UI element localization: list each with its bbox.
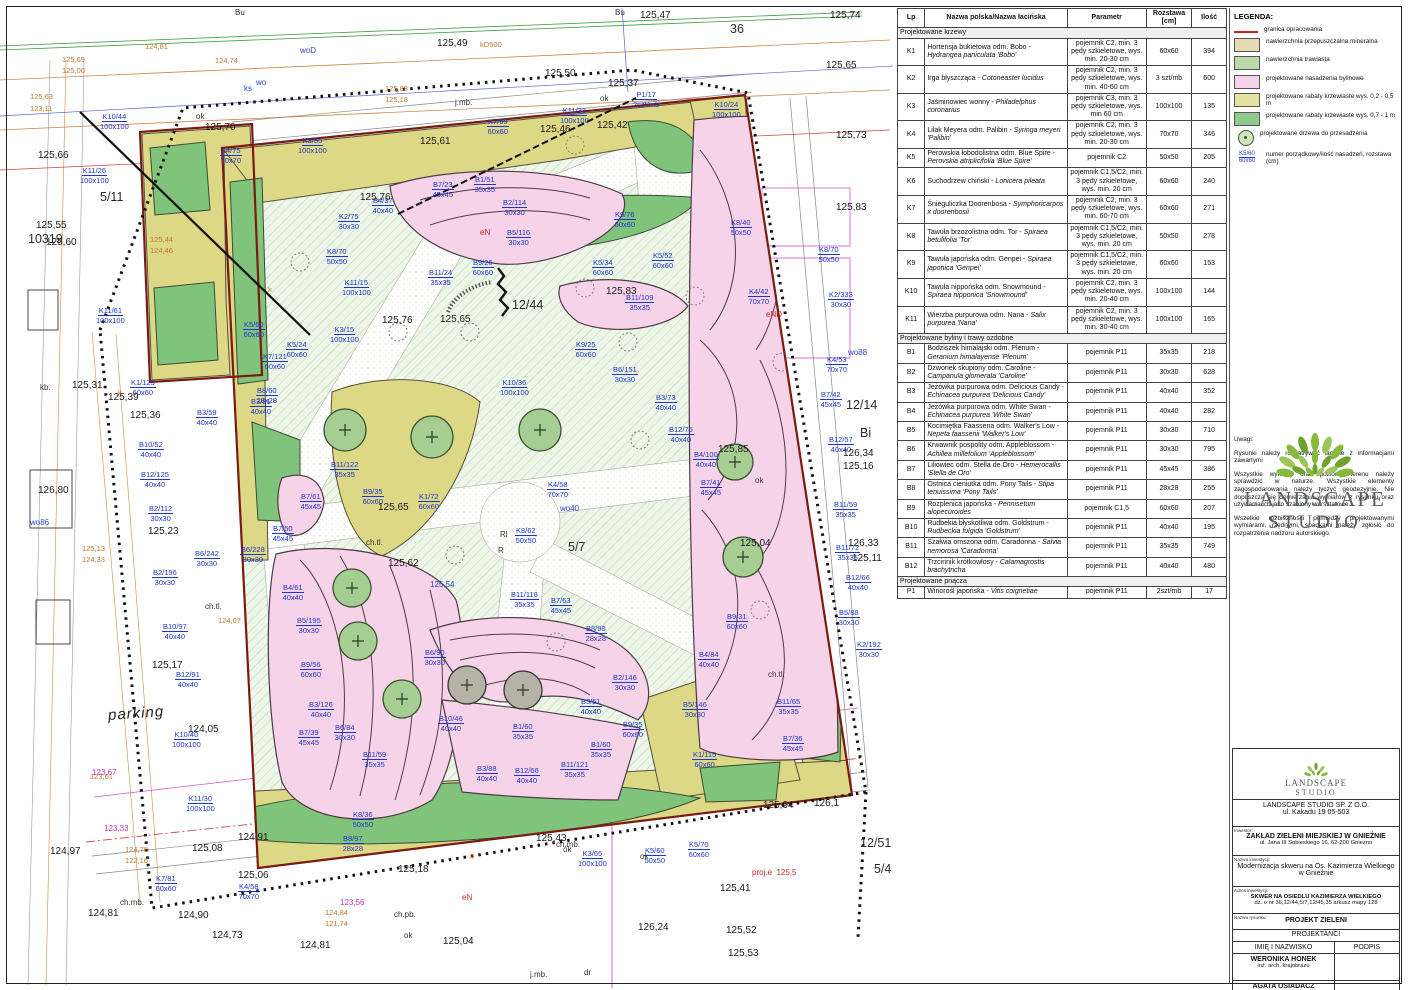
plan-plant-label: B11/12135x35 xyxy=(560,760,589,779)
param-cell: pojemnik P11 xyxy=(1067,587,1146,598)
schedule-row: B9Rozplenica japońska - Pennisetum alope… xyxy=(898,499,1227,518)
plan-text: 36 xyxy=(730,22,744,36)
plan-text: 125,85 xyxy=(718,444,749,455)
plan-text: 124,84 xyxy=(325,908,348,917)
plan-plant-label: B7/3645x45 xyxy=(782,734,804,753)
plan-text: 121,74 xyxy=(325,919,348,928)
plan-plant-label: B8/9728x28 xyxy=(342,834,364,853)
plan-text: 12/14 xyxy=(846,398,877,412)
legend-item: K5/6060x60numer porządkowy/ilość nasadze… xyxy=(1234,151,1396,165)
plan-plant-label: B4/8440x40 xyxy=(698,650,720,669)
col-spacing: Rozstawa [cm] xyxy=(1146,9,1192,28)
plan-text: ok xyxy=(196,112,204,121)
plan-plant-label: K3/15100x100 xyxy=(330,325,359,344)
spacing-cell: 60x60 xyxy=(1146,499,1192,518)
schedule-row: K7Śnieguliczka Doorenbosa - Symphoricarp… xyxy=(898,196,1227,224)
plan-plant-label: B3/7340x40 xyxy=(655,393,677,412)
name-cell: Lilak Meyera odm. Palibin - Syringa meye… xyxy=(925,121,1067,149)
lp-cell: B9 xyxy=(898,499,925,518)
investor-row: Inwestor: ZAKŁAD ZIELENI MIEJSKIEJ W GNI… xyxy=(1233,827,1399,856)
legend-item: nawierzchnia przepuszczalna mineralna xyxy=(1234,38,1396,52)
lp-cell: K1 xyxy=(898,38,925,66)
spacing-cell: 35x35 xyxy=(1146,538,1192,557)
designers-header: PROJEKTANCI xyxy=(1233,930,1399,942)
plan-text: 124,81 xyxy=(300,940,331,951)
plan-plant-label: K5/7060x60 xyxy=(688,840,710,859)
lp-cell: K4 xyxy=(898,121,925,149)
plan-plant-label: K11/26100x100 xyxy=(80,166,109,185)
plan-text: wo xyxy=(256,78,266,87)
qty-cell: 282 xyxy=(1192,402,1227,421)
spacing-cell: 60x60 xyxy=(1146,168,1192,196)
col-qty: Ilość xyxy=(1192,9,1227,28)
plan-text: 126,1 xyxy=(814,798,839,809)
right-panel: LEGENDA: granica opracowanianawierzchnia… xyxy=(1229,8,1400,984)
legend-item-label: projektowane rabaty krzewiaste wys. 0,7 … xyxy=(1266,112,1395,119)
plan-text: 125,47 xyxy=(640,10,671,21)
legend-item-label: nawierzchnia trawiasta xyxy=(1266,56,1330,63)
plan-text: R xyxy=(498,546,504,555)
plan-plant-label: K4/5870x70 xyxy=(547,480,569,499)
plan-text: 124,05 xyxy=(188,724,219,735)
plan-plant-label: B6/15130x30 xyxy=(612,365,638,384)
spacing-cell: 100x100 xyxy=(1146,278,1192,306)
plan-plant-label: B2/11230x30 xyxy=(148,504,173,523)
col-name: Nazwa polska/Nazwa łacińska xyxy=(925,9,1067,28)
plan-text: 124,91 xyxy=(238,832,269,843)
plan-plant-label: K4/5870x70 xyxy=(238,882,260,901)
param-cell: pojemnik P11 xyxy=(1067,557,1146,576)
plan-text: ch.pb. xyxy=(394,910,416,919)
name-cell: Dzwonek skupiony odm. Caroline - Campanu… xyxy=(925,363,1067,382)
plan-plant-label: B11/11835x35 xyxy=(510,590,539,609)
name-cell: Kocimiętka Faassena odm. Walker's Low - … xyxy=(925,421,1067,440)
param-cell: pojemnik C1,5 xyxy=(1067,499,1146,518)
spacing-cell: 100x100 xyxy=(1146,306,1192,334)
spacing-cell: 30x30 xyxy=(1146,441,1192,460)
param-cell: pojemnik C2, min. 3 pędy szkieletowe, wy… xyxy=(1067,278,1146,306)
spacing-cell: 50x50 xyxy=(1146,149,1192,168)
qty-cell: 480 xyxy=(1192,557,1227,576)
plan-text: 125,41 xyxy=(720,883,751,894)
plan-plant-label: B7/5045x45 xyxy=(272,524,294,543)
qty-cell: 749 xyxy=(1192,538,1227,557)
name-cell: Wierzba purpurowa odm. Nana - Salix purp… xyxy=(925,306,1067,334)
name-cell: Trzcinnik krótkowłosy - Calamagrostis br… xyxy=(925,557,1067,576)
name-cell: Winorośl japońska - Vitis coignetiae xyxy=(925,587,1067,598)
company-row: LANDSCAPE STUDIO SP. Z O.O. ul. Kakadu 1… xyxy=(1233,800,1399,827)
schedule-row: K4Lilak Meyera odm. Palibin - Syringa me… xyxy=(898,121,1227,149)
schedule-row: B1Bodziszek himalajski odm. Plenum - Ger… xyxy=(898,344,1227,363)
schedule-row: K5Perowskia łobodolistna odm. Blue Spire… xyxy=(898,149,1227,168)
plan-text: 10319 xyxy=(28,232,63,246)
plan-text: proj.e 125,5 xyxy=(752,868,796,877)
plan-plant-label: B3/5940x40 xyxy=(196,408,218,427)
qty-cell: 135 xyxy=(1192,93,1227,121)
spacing-cell: 60x60 xyxy=(1146,251,1192,279)
param-cell: pojemnik P11 xyxy=(1067,538,1146,557)
plan-text: 125,11 xyxy=(852,553,882,564)
plan-text: 126,34 xyxy=(843,448,874,459)
legend: LEGENDA: granica opracowanianawierzchnia… xyxy=(1234,12,1396,169)
lp-cell: B7 xyxy=(898,460,925,479)
plan-plant-label: B12/6640x40 xyxy=(845,573,871,592)
legend-item-label: projektowane drzewa do przesadzenia xyxy=(1260,130,1367,137)
plan-text: 125,37 xyxy=(608,78,639,89)
spacing-cell: 3 szt/mb xyxy=(1146,66,1192,94)
plan-text: ch.mb. xyxy=(120,898,144,907)
spacing-cell: 40x40 xyxy=(1146,383,1192,402)
designers-colheads: IMIĘ I NAZWISKO PODPIS xyxy=(1233,942,1399,954)
name-cell: Jaśminowiec wonny - Philadelphus coronar… xyxy=(925,93,1067,121)
plan-text: 125,65 xyxy=(826,60,857,71)
color-swatch xyxy=(1234,38,1260,52)
schedule-row: B6Krwawnik pospolity odm. Appleblossom -… xyxy=(898,441,1227,460)
param-cell: pojemnik C2, min. 3 pędy szkieletowe, wy… xyxy=(1067,121,1146,149)
plan-plant-label: B3/5140x40 xyxy=(580,697,602,716)
schedule-row: K10Tawuła nippońska odm. Snowmound - Spi… xyxy=(898,278,1227,306)
designer-name-cell: AGATA OSIADACZmgr inż. arch. krajobrazu xyxy=(1233,981,1335,990)
spacing-cell: 70x70 xyxy=(1146,121,1192,149)
plan-plant-label: K10/44100x100 xyxy=(100,112,129,131)
plan-plant-label: B11/2435x35 xyxy=(428,268,453,287)
plan-plant-label: B7/6145x45 xyxy=(300,492,322,511)
param-cell: pojemnik C2, min. 3 pędy szkieletowe, wy… xyxy=(1067,38,1146,66)
plan-plant-label: K11/61100x100 xyxy=(96,306,125,325)
plan-text: 125,00 xyxy=(62,66,85,75)
plan-plant-label: B9/5660x60 xyxy=(300,660,322,679)
plan-text: eN xyxy=(462,893,472,902)
plan-plant-label: B5/8830x30 xyxy=(838,608,860,627)
name-header: IMIĘ I NAZWISKO xyxy=(1233,942,1335,953)
plan-text: 123,33 xyxy=(104,824,128,833)
plan-plant-label: B5/11630x30 xyxy=(506,228,531,247)
plan-text: wo88 xyxy=(848,348,867,357)
param-cell: pojemnik P11 xyxy=(1067,344,1146,363)
legend-item: projektowane nasadzenia bylinowe xyxy=(1234,75,1396,89)
schedule-row: B5Kocimiętka Faassena odm. Walker's Low … xyxy=(898,421,1227,440)
qty-cell: 394 xyxy=(1192,38,1227,66)
lp-cell: B5 xyxy=(898,421,925,440)
plan-plant-label: K9/7660x60 xyxy=(614,210,636,229)
plan-label-layer: K10/44100x100K11/26100x100K4/7570x70K3/5… xyxy=(0,0,895,990)
plan-plant-label: B12/9140x40 xyxy=(175,670,201,689)
name-cell: Bodziszek himalajski odm. Plenum - Geran… xyxy=(925,344,1067,363)
plan-text: 123,67 xyxy=(92,768,116,777)
legend-item: projektowane rabaty krzewiaste wys. 0,2 … xyxy=(1234,93,1396,107)
signature-cell xyxy=(1335,954,1399,980)
plan-text: wo86 xyxy=(30,518,49,527)
logo-leaves-icon-small xyxy=(1290,752,1342,778)
plan-text: 125,61 xyxy=(420,136,451,147)
plan-plant-label: K4/5370x70 xyxy=(826,355,848,374)
plan-plant-label: K10/36100x100 xyxy=(500,378,529,397)
plan-text: 125,52 xyxy=(726,925,757,936)
spacing-cell: 50x50 xyxy=(1146,223,1192,251)
legend-item-label: granica opracowania xyxy=(1264,26,1322,33)
param-cell: pojemnik C1,5/C2, min. 3 pędy szkieletow… xyxy=(1067,168,1146,196)
plan-text: 123,11 xyxy=(30,104,52,113)
lp-cell: B10 xyxy=(898,518,925,537)
tb-logo-text2: STUDIO xyxy=(1295,788,1336,797)
plan-text: 125,16 xyxy=(843,461,874,472)
plan-plant-label: K4/7570x70 xyxy=(220,146,242,165)
plan-plant-label: B7/2345x45 xyxy=(432,180,454,199)
schedule-row: B7Liliowiec odm. Stella de Oro - Hemeroc… xyxy=(898,460,1227,479)
plan-plant-label: B1/5135x35 xyxy=(474,175,496,194)
title-block: LANDSCAPE STUDIO LANDSCAPE STUDIO SP. Z … xyxy=(1232,748,1400,990)
plan-text: 5/4 xyxy=(874,862,891,876)
plan-text: eN xyxy=(480,228,490,237)
plan-plant-label: B12/7540x40 xyxy=(668,425,694,444)
plan-plant-label: B7/4245x45 xyxy=(820,390,842,409)
plan-text: 12/51 xyxy=(860,836,891,850)
plan-text: Bi xyxy=(860,426,871,440)
schedule-section-label: Projektowane pnącza xyxy=(898,577,1227,587)
plan-text: 125,69 xyxy=(62,55,85,64)
param-cell: pojemnik P11 xyxy=(1067,383,1146,402)
schedule-row: B4Jeżówka purpurowa odm. White Swan - Ec… xyxy=(898,402,1227,421)
param-cell: pojemnik P11 xyxy=(1067,480,1146,499)
name-cell: Jeżówka purpurowa odm. White Swan - Echi… xyxy=(925,402,1067,421)
plan-text: 125,36 xyxy=(130,410,161,421)
spacing-cell: 40x40 xyxy=(1146,518,1192,537)
plan-text: k xyxy=(268,285,272,294)
plan-text: 125,65 xyxy=(440,314,471,325)
qty-cell: 352 xyxy=(1192,383,1227,402)
plan-text: woD xyxy=(300,46,316,55)
plan-text: 125,76 xyxy=(360,192,391,203)
plan-text: 125,50 xyxy=(545,68,576,79)
schedule-row: K11Wierzba purpurowa odm. Nana - Salix p… xyxy=(898,306,1227,334)
plan-text: ok xyxy=(563,845,571,854)
drawing-name-row: Nazwa rysunku: PROJEKT ZIELENI xyxy=(1233,914,1399,930)
plan-plant-label: K5/3460x60 xyxy=(592,258,614,277)
plan-plant-label: B10/5240x40 xyxy=(138,440,164,459)
lp-cell: B11 xyxy=(898,538,925,557)
investor-address: ul. Jana III Sobieskiego 16, 62-200 Gnie… xyxy=(1236,840,1396,846)
param-cell: pojemnik P11 xyxy=(1067,518,1146,537)
plan-text: 124,33 xyxy=(82,555,105,564)
logo-text-line2: STUDIO xyxy=(1236,512,1394,534)
spacing-cell: 35x35 xyxy=(1146,344,1192,363)
designer-row: WERONIKA HONEKinż. arch. krajobrazu xyxy=(1233,954,1399,981)
schedule-section-label: Projektowane byliny i trawy ozdobne xyxy=(898,334,1227,344)
plan-text: 125,88 xyxy=(385,84,408,93)
plan-text: 125,66 xyxy=(38,150,69,161)
plan-text: 125,08 xyxy=(192,843,223,854)
plan-plant-label: K2/7530x30 xyxy=(338,212,360,231)
plan-text: Bu xyxy=(615,8,625,17)
plan-plant-label: B11/5935x35 xyxy=(362,750,387,769)
plan-plant-label: B6/8430x30 xyxy=(334,723,356,742)
tb-logo-text1: LANDSCAPE xyxy=(1285,778,1347,788)
logo-text-line1: LANDSCAPE xyxy=(1236,487,1394,512)
plan-text: 124,90 xyxy=(178,910,209,921)
plan-text: kD500 xyxy=(480,40,502,49)
plan-plant-label: K7/8160x60 xyxy=(155,874,177,893)
name-cell: Tawuła nippońska odm. Snowmound - Spirae… xyxy=(925,278,1067,306)
plan-plant-label: B9/3560x60 xyxy=(622,720,644,739)
plan-text: 125,62 xyxy=(388,558,419,569)
plan-text: ch.tl. xyxy=(366,538,383,547)
plan-text: Rl xyxy=(500,530,508,539)
color-swatch xyxy=(1234,75,1260,89)
plan-plant-label: K3/65100x100 xyxy=(578,849,607,868)
spacing-cell: 40x40 xyxy=(1146,557,1192,576)
qty-cell: 144 xyxy=(1192,278,1227,306)
schedule-row: B8Ostnica cieniutka odm. Pony Tails - St… xyxy=(898,480,1227,499)
spacing-cell: 60x60 xyxy=(1146,196,1192,224)
schedule-row: P1Winorośl japońska - Vitis coignetiaepo… xyxy=(898,587,1227,598)
plan-text: ok xyxy=(755,476,763,485)
legend-item: projektowane rabaty krzewiaste wys. 0,7 … xyxy=(1234,112,1396,126)
qty-cell: 255 xyxy=(1192,480,1227,499)
address-label: Adres inwestycji: xyxy=(1234,888,1268,893)
schedule-row: K6Suchodrzew chiński - Lonicera pileatap… xyxy=(898,168,1227,196)
schedule-section-label: Projektowane krzewy xyxy=(898,28,1227,38)
plan-text: ok xyxy=(640,852,648,861)
plan-text: 125,63 xyxy=(30,92,53,101)
plan-text: 125,65 xyxy=(378,502,409,513)
investor-name: ZAKŁAD ZIELENI MIEJSKIEJ W GNIEŹNIE xyxy=(1236,833,1396,840)
plan-text: ch.tl. xyxy=(205,602,222,611)
plan-plant-label: K2/19230x30 xyxy=(856,640,882,659)
plan-plant-label: B11/5935x35 xyxy=(833,500,858,519)
plan-text: 125,76 xyxy=(382,315,413,326)
plan-text: 125,73 xyxy=(836,130,867,141)
spacing-cell: 30x30 xyxy=(1146,363,1192,382)
lp-cell: K6 xyxy=(898,168,925,196)
plan-plant-label: B3/12640x40 xyxy=(308,700,334,719)
plan-plant-label: K5/2460x60 xyxy=(286,340,308,359)
plan-text: 125,70 xyxy=(205,122,236,133)
lp-cell: B6 xyxy=(898,441,925,460)
spacing-cell: 100x100 xyxy=(1146,93,1192,121)
plan-text: 125,53 xyxy=(728,948,759,959)
qty-cell: 153 xyxy=(1192,251,1227,279)
schedule-row: B10Rudbekia błyskotliwa odm. Goldstrum -… xyxy=(898,518,1227,537)
plan-text: 125,42 xyxy=(597,120,628,131)
plan-text: 125,39 xyxy=(108,392,139,403)
plan-text: 124,46 xyxy=(150,246,173,255)
investment-address2: dz. o nr 36,12/44,5/7,12/45,35 arkusz ma… xyxy=(1236,900,1396,906)
plan-plant-label: B10/4640x40 xyxy=(438,714,464,733)
plan-text: k xyxy=(470,852,474,861)
param-cell: pojemnik P11 xyxy=(1067,460,1146,479)
investment-row: Nazwa inwestycji: Modernizacja skweru na… xyxy=(1233,856,1399,887)
plan-text: 125,49 xyxy=(437,38,468,49)
lp-cell: K5 xyxy=(898,149,925,168)
plan-plant-label: K11/15100x100 xyxy=(342,278,371,297)
legend-title: LEGENDA: xyxy=(1234,12,1396,21)
legend-item-label: projektowane nasadzenia bylinowe xyxy=(1266,75,1364,82)
qty-cell: 218 xyxy=(1192,344,1227,363)
plan-plant-label: B2/14630x30 xyxy=(612,673,638,692)
plan-text: 125,31 xyxy=(72,380,103,391)
plan-plant-label: K10/24100x100 xyxy=(712,100,741,119)
lp-cell: K7 xyxy=(898,196,925,224)
plan-text: 12/44 xyxy=(512,298,543,312)
schedule-row: K2Irga błyszcząca - Cotoneaster lucidusp… xyxy=(898,66,1227,94)
lp-cell: B2 xyxy=(898,363,925,382)
lp-cell: K9 xyxy=(898,251,925,279)
plan-plant-label: K8/4050x50 xyxy=(730,218,752,237)
name-cell: Perowskia łobodolistna odm. Blue Spire -… xyxy=(925,149,1067,168)
plan-plant-label: B2/19630x30 xyxy=(152,568,178,587)
param-cell: pojemnik P11 xyxy=(1067,441,1146,460)
plan-text: 125,18 xyxy=(385,95,408,104)
param-cell: pojemnik C1,5/C2, min. 3 pędy szkieletow… xyxy=(1067,251,1146,279)
legend-item-label: numer porządkowy/ilość nasadzeń, rozstaw… xyxy=(1266,151,1396,165)
name-cell: Rudbekia błyskotliwa odm. Goldstrum - Ru… xyxy=(925,518,1067,537)
plan-plant-label: K5/5260x60 xyxy=(652,251,674,270)
plan-text: 125,54 xyxy=(430,580,454,589)
plan-plant-label: B3/8140x40 xyxy=(250,397,272,416)
lp-cell: K3 xyxy=(898,93,925,121)
legend-item: nawierzchnia trawiasta xyxy=(1234,56,1396,70)
investor-label: Inwestor: xyxy=(1234,828,1253,833)
sign-header: PODPIS xyxy=(1335,942,1399,953)
name-cell: Tawuła japońska odm. Genpei - Spiraea ja… xyxy=(925,251,1067,279)
param-cell: pojemnik C2, min. 3 pędy szkieletowe, wy… xyxy=(1067,66,1146,94)
plan-text: eND xyxy=(766,310,782,319)
plan-text: 124,76 xyxy=(125,845,148,854)
plan-plant-label: K9/2560x60 xyxy=(575,340,597,359)
schedule-row: K9Tawuła japońska odm. Genpei - Spiraea … xyxy=(898,251,1227,279)
schedule-header-row: Lp Nazwa polska/Nazwa łacińska Parametr … xyxy=(898,9,1227,28)
plan-plant-label: B11/12235x35 xyxy=(330,460,359,479)
plan-text: Bu xyxy=(235,8,245,17)
plan-text: ok xyxy=(404,931,412,940)
qty-cell: 795 xyxy=(1192,441,1227,460)
plan-text: 125,13 xyxy=(82,544,105,553)
param-cell: pojemnik P11 xyxy=(1067,363,1146,382)
plan-text: 5/7 xyxy=(568,540,585,554)
plan-text: 124,81 xyxy=(88,908,119,919)
plan-plant-label: B9/2660x60 xyxy=(472,258,494,277)
param-cell: pojemnik C2, min. 3 pędy szkieletowe, wy… xyxy=(1067,196,1146,224)
lp-cell: K8 xyxy=(898,223,925,251)
plan-plant-label: K11/30100x100 xyxy=(186,794,215,813)
color-swatch xyxy=(1234,112,1260,126)
investment-name: Modernizacja skweru na Os. Kazimierza Wi… xyxy=(1236,863,1396,877)
plan-text: 123,56 xyxy=(340,898,364,907)
spacing-cell: 40x40 xyxy=(1146,402,1192,421)
name-cell: Tawuła brzozolistna odm. Tor - Spiraea b… xyxy=(925,223,1067,251)
lp-cell: B12 xyxy=(898,557,925,576)
boundary-line-symbol xyxy=(1234,31,1258,33)
plan-plant-label: K8/3650x50 xyxy=(352,810,374,829)
legend-item: projektowane drzewa do przesadzenia xyxy=(1234,130,1396,146)
plan-plant-label: B4/6140x40 xyxy=(282,583,304,602)
name-cell: Hortensja bukietowa odm. Bobo - Hydrange… xyxy=(925,38,1067,66)
param-cell: pojemnik P11 xyxy=(1067,402,1146,421)
lp-cell: B4 xyxy=(898,402,925,421)
schedule-section-row: Projektowane krzewy xyxy=(898,28,1227,38)
plan-plant-label: B12/6640x40 xyxy=(514,766,540,785)
plan-plant-label: B8/9828x28 xyxy=(585,624,607,643)
plan-text: 125,94 xyxy=(763,800,794,811)
qty-cell: 207 xyxy=(1192,499,1227,518)
plan-plant-label: K7/12160x60 xyxy=(262,352,288,371)
qty-cell: 628 xyxy=(1192,363,1227,382)
plan-plant-label: B5/19530x30 xyxy=(296,616,322,635)
plan-plant-label: B1/6035x35 xyxy=(590,740,612,759)
plan-text: 125,23 xyxy=(148,526,179,537)
plan-text: j.mb. xyxy=(530,970,547,979)
plan-plant-label: P1/172szt/mb xyxy=(633,90,659,109)
